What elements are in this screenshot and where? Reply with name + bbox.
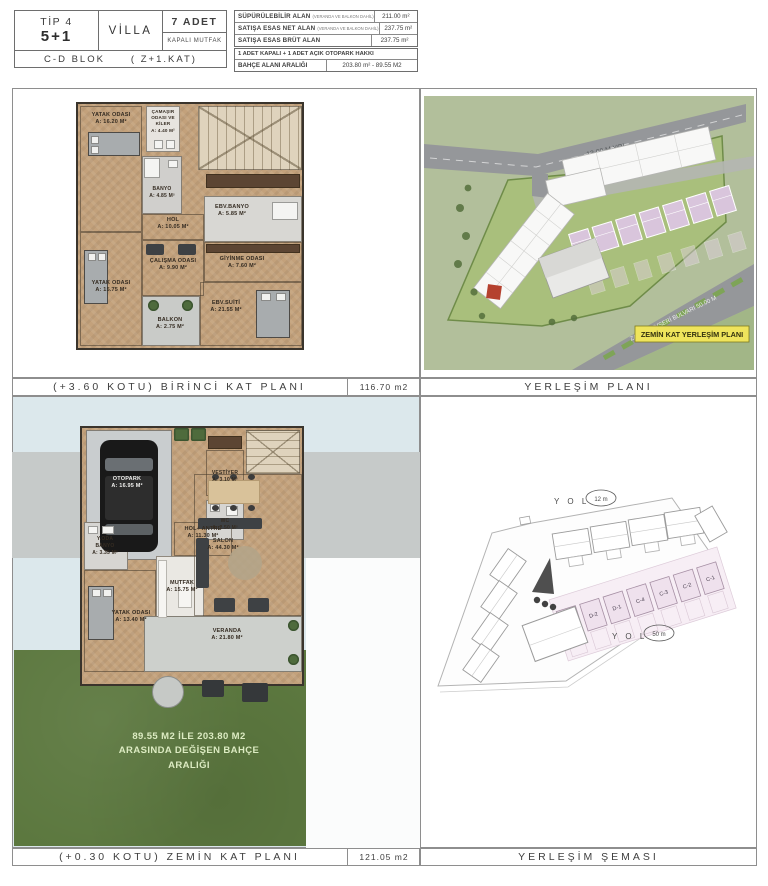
pillow (261, 293, 271, 301)
ground-floor-plan: OTOPARKA: 16.95 M² VESTİYERA: 3.10 M² WC… (80, 426, 304, 686)
parking-note: 1 ADET KAPALI + 1 ADET AÇIK OTOPARK HAKK… (235, 49, 417, 60)
area-note: (VERANDA VE BALKON DAHİL) (312, 14, 373, 19)
room-label-giyinme: GİYİNME ODASIA: 7.60 M² (212, 256, 272, 271)
schema-road-bottom-label: Y O L (612, 632, 647, 641)
armchair (214, 598, 235, 612)
stairs (246, 430, 300, 474)
site-schema-drawing: Y O L 12 m (420, 396, 757, 848)
plant (182, 300, 193, 311)
room-label-bedroom1: YATAK ODASIA: 16.20 M² (80, 112, 142, 127)
unit-info-table: TİP 4 5+1 VİLLA 7 ADET KAPALI MUTFAK C-D… (14, 10, 227, 68)
lounge-chair (202, 680, 224, 697)
pillow (91, 136, 99, 144)
schema-tree (534, 597, 540, 603)
table-row: SATIŞA ESAS BRÜT ALAN 237.75 m² (235, 35, 417, 46)
area-note: (VERANDA VE BALKON DAHİL) (317, 26, 378, 31)
caption-site-plan-label: YERLEŞİM PLANI (420, 378, 757, 396)
room-label-balkon: BALKONA: 2.75 M² (142, 317, 198, 332)
plant (148, 300, 159, 311)
pillow (91, 146, 99, 154)
panel-grid: YATAK ODASIA: 16.20 M² ÇAMAŞIR ODASI VE … (12, 88, 757, 866)
plant (288, 654, 299, 665)
caption-ground-floor-label: (+0.30 KOTU) ZEMİN KAT PLANI (12, 848, 347, 866)
planter (191, 428, 206, 441)
caption-site-plan: YERLEŞİM PLANI (420, 378, 757, 396)
caption-ground-floor: (+0.30 KOTU) ZEMİN KAT PLANI 121.05 m2 (12, 848, 420, 866)
block-row: C-D BLOK ( Z+1.KAT) (15, 51, 226, 68)
area-label: SATIŞA ESAS BRÜT ALAN (238, 37, 320, 44)
panel-site-schema: Y O L 12 m (420, 396, 757, 848)
bed (84, 250, 108, 304)
schema-tree (550, 604, 556, 610)
wardrobe (206, 174, 300, 188)
area-label: SÜPÜRÜLEBİLİR ALAN (238, 13, 310, 20)
pillow (92, 589, 101, 597)
count-label: 7 ADET (163, 12, 226, 33)
dining-table (208, 480, 260, 504)
garden-table (152, 676, 184, 708)
schema-hut (520, 516, 531, 525)
area-table: SÜPÜRÜLEBİLİR ALAN(VERANDA VE BALKON DAH… (234, 10, 418, 47)
area-value: 237.75 m² (371, 35, 417, 46)
garden-range-row: BAHÇE ALANI ARALIĞI 203.80 m² - 89.55 M2 (235, 60, 417, 71)
bed (88, 132, 140, 156)
garden-note-line2: ARASINDA DEĞİŞEN BAHÇE ARALIĞI (99, 744, 279, 773)
plan-sheet: TİP 4 5+1 VİLLA 7 ADET KAPALI MUTFAK C-D… (0, 0, 768, 886)
desk (146, 244, 164, 255)
pillow (88, 253, 96, 261)
pillow (276, 293, 286, 301)
room-label-veranda: VERANDAA: 21.80 M² (200, 628, 254, 643)
room-veranda (144, 616, 302, 672)
site-plan-badge-label: ZEMİN KAT YERLEŞİM PLANI (641, 330, 743, 339)
garden-range-value: 203.80 m² - 89.55 M2 (327, 60, 417, 71)
table-row: SATIŞA ESAS NET ALAN(VERANDA VE BALKON D… (235, 23, 417, 35)
area-value: 211.00 m² (374, 11, 417, 22)
room-label-ebv-suiti: EBV.SUİTİA: 21.55 M² (202, 300, 250, 315)
block-label: C-D BLOK (44, 54, 105, 65)
plant (288, 620, 299, 631)
tip-label: TİP 4 (40, 16, 72, 28)
panel-site-plan: 12.00 M YOL (420, 88, 757, 378)
garden-note: 89.55 M2 İLE 203.80 M2 ARASINDA DEĞİŞEN … (99, 730, 279, 773)
room-label-bedroom2: YATAK ODASIA: 15.75 M² (82, 280, 140, 295)
stairs-cross (247, 431, 299, 473)
stairs (198, 106, 302, 170)
room-label-laundry: ÇAMAŞIR ODASI VE KİLERA: 4.40 M² (146, 109, 180, 134)
armchair (248, 598, 269, 612)
road-stub (532, 172, 548, 198)
desk (178, 244, 196, 255)
room-label-banyo: BANYOA: 4.85 M² (142, 186, 182, 200)
bed (256, 290, 290, 338)
room-label-calisma: ÇALIŞMA ODASIA: 9.90 M² (144, 258, 202, 273)
site-plan-map: 12.00 M YOL (424, 96, 754, 370)
sheet-header: TİP 4 5+1 VİLLA 7 ADET KAPALI MUTFAK C-D… (14, 10, 754, 70)
first-floor-plan: YATAK ODASIA: 16.20 M² ÇAMAŞIR ODASI VE … (76, 102, 304, 350)
unit-count-cell: 7 ADET KAPALI MUTFAK (163, 11, 226, 50)
stairs-cross (199, 107, 301, 169)
washer (166, 140, 175, 149)
planter (174, 428, 189, 441)
caption-first-floor-label: (+3.60 KOTU) BİRİNCİ KAT PLANI (12, 378, 347, 396)
plan-type: 5+1 (41, 28, 72, 45)
unit-type-cell: TİP 4 5+1 (15, 11, 99, 50)
room-label-ebv-banyo: EBV.BANYOA: 5.85 M² (206, 204, 258, 219)
bathtub (272, 202, 298, 220)
villa-label: VİLLA (109, 25, 153, 37)
panel-first-floor-plan: YATAK ODASIA: 16.20 M² ÇAMAŞIR ODASI VE … (12, 88, 420, 378)
schema-road-top-label: Y O L (554, 497, 589, 506)
area-label: SATIŞA ESAS NET ALAN (238, 25, 315, 32)
pillow (98, 253, 106, 261)
unit-category-cell: VİLLA (99, 11, 163, 50)
schema-road-bottom-value: 50 m (652, 632, 665, 638)
shower (144, 158, 160, 178)
caption-ground-floor-area: 121.05 m2 (347, 848, 420, 866)
floor-label: ( Z+1.KAT) (131, 54, 197, 65)
caption-first-floor-area: 116.70 m2 (347, 378, 420, 396)
table-row: SÜPÜRÜLEBİLİR ALAN(VERANDA VE BALKON DAH… (235, 11, 417, 23)
room-label-vestiyer: VESTİYERA: 3.10 M² (204, 470, 246, 484)
side-area (306, 558, 420, 848)
garden-range-label: BAHÇE ALANI ARALIĞI (235, 60, 327, 71)
room-label-yoda-banyo: Y.ODA BANYOA: 3.35 M² (88, 536, 122, 556)
caption-first-floor: (+3.60 KOTU) BİRİNCİ KAT PLANI 116.70 m2 (12, 378, 420, 396)
sink (168, 160, 178, 168)
area-value: 237.75 m² (379, 23, 417, 34)
room-label-mutfak: MUTFAKA: 15.75 M² (162, 580, 202, 595)
shower (102, 526, 114, 534)
garden-note-line1: 89.55 M2 İLE 203.80 M2 (99, 730, 279, 744)
parking-garden-table: 1 ADET KAPALI + 1 ADET AÇIK OTOPARK HAKK… (234, 48, 418, 72)
caption-site-schema-label: YERLEŞİM ŞEMASI (420, 848, 757, 866)
wardrobe (206, 244, 300, 253)
room-label-otopark: OTOPARKA: 16.95 M² (98, 476, 156, 491)
sink (88, 526, 98, 534)
room-label-yatak: YATAK ODASIA: 13.40 M² (108, 610, 154, 625)
panel-ground-floor-plan: OTOPARKA: 16.95 M² VESTİYERA: 3.10 M² WC… (12, 396, 420, 848)
kitchen-label: KAPALI MUTFAK (167, 33, 221, 49)
room-label-hol: HOLA: 10.05 M² (142, 217, 204, 232)
pillow (103, 589, 112, 597)
caption-site-schema: YERLEŞİM ŞEMASI (420, 848, 757, 866)
room-label-salon: SALONA: 44.30 M² (200, 538, 246, 553)
schema-tree (542, 601, 548, 607)
lounge-chair (242, 683, 268, 702)
wardrobe (208, 436, 242, 449)
red-structure (486, 284, 502, 300)
washer (154, 140, 163, 149)
schema-road-top-value: 12 m (594, 497, 607, 503)
